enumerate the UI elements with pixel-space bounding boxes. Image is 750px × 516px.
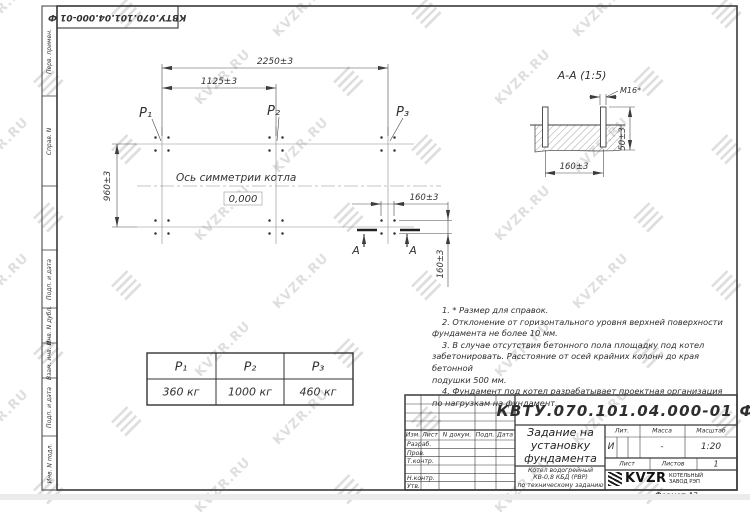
level-mark: 0,000 (229, 194, 258, 205)
col-data: Дата (497, 432, 513, 439)
top-stamp: КВТУ.070.101.04.000-01 Ф (57, 6, 178, 28)
margin-cell-sprav: Справ. N (42, 96, 57, 186)
note-line: 2. Отклонение от горизонтального уровня … (432, 317, 736, 329)
drawing-subtitle: Котел водогрейный КВ-0,8 КБД (РВР) по те… (516, 467, 605, 489)
section-view: А-А (1:5) M16* 50±3 160±3 (530, 69, 641, 177)
foundation-plan: 2250±3 1125±3 960±3 160±3 160±3 P₁ P₂ P₃… (103, 57, 452, 287)
massa-value: - (660, 442, 663, 452)
subtitle-line: КВ-0,8 КБД (РВР) (533, 474, 588, 481)
section-mark-left: A (351, 244, 360, 257)
load-value-p2: 1000 кг (228, 386, 272, 399)
kvzr-logo-text: KVZR (625, 471, 667, 486)
row-utv: Утв. (407, 483, 420, 490)
note-line: 3. В случае отсутствия бетонного пола пл… (432, 340, 736, 352)
row-nkontr: Н.контр. (407, 475, 435, 482)
note-line: 4. Фундамент под котел разрабатывает про… (432, 386, 736, 398)
kvzr-logo-icon (608, 472, 622, 486)
col-ndokum: N докум. (443, 432, 472, 439)
section-dim-height: 50±3 (618, 127, 628, 150)
axis-label: Ось симметрии котла (176, 172, 296, 184)
listov-label: Листов (661, 461, 684, 468)
doc-number: КВТУ.070.101.04.000-01 Ф (496, 402, 750, 420)
margin-cell-invpodl: Инв. N подл. (42, 436, 57, 490)
company-name: КОТЕЛЬНЫЙ ЗАВОД РЭП (669, 473, 703, 486)
lit-value: И (608, 442, 615, 452)
subtitle-line: Котел водогрейный (528, 467, 593, 474)
margin-cell-podp1: Подп. и дата (42, 250, 57, 308)
massa-label: Масса (652, 428, 672, 435)
label-p2: P₂ (267, 104, 280, 119)
technical-notes: 1. * Размер для справок. 2. Отклонение о… (432, 305, 736, 409)
top-stamp-number: КВТУ.070.101.04.000-01 Ф (48, 12, 186, 22)
list-label: Лист (619, 461, 635, 468)
subtitle-line: по техническому заданию (517, 482, 603, 489)
dim-height: 960±3 (103, 171, 113, 202)
margin-label: Подп. и дата (46, 259, 53, 300)
load-table-header-p2: P₂ (244, 359, 257, 374)
margin-cell-vzam: Взам. инв. N (42, 343, 57, 378)
dim-bolt-x: 160±3 (410, 193, 439, 203)
note-line: подушки 500 мм. (432, 375, 736, 387)
label-p1: P₁ (139, 106, 152, 121)
masshtab-value: 1:20 (701, 442, 721, 452)
row-tkontr: Т.контр. (407, 458, 434, 465)
bolt-size: M16* (620, 86, 641, 95)
note-line: фундамента не более 10 мм. (432, 328, 736, 340)
note-line: 1. * Размер для справок. (432, 305, 736, 317)
margin-cell-invdubl: Инв. N дубл. (42, 308, 57, 343)
dim-half-width: 1125±3 (201, 77, 237, 87)
margin-label: Справ. N (46, 127, 53, 154)
section-title: А-А (1:5) (557, 69, 607, 82)
lit-label: Лит. (615, 428, 629, 435)
margin-cell-podp2: Подп. и дата (42, 378, 57, 436)
title-line: Задание на (527, 426, 594, 439)
col-list: Лист (422, 432, 438, 439)
margin-label: Подп. и дата (46, 387, 53, 428)
load-table-header-p3: P₃ (312, 359, 325, 374)
sheet-edge-shadow (0, 494, 750, 500)
load-table-header-p1: P₁ (175, 359, 188, 374)
margin-cell-perv: Перв. примен. (42, 6, 57, 96)
load-value-p3: 460 кг (300, 386, 337, 399)
margin-label: Перв. примен. (46, 28, 53, 73)
drawing-title: Задание на установку фундамента (516, 426, 605, 465)
margin-label: Инв. N дубл. (46, 306, 53, 345)
row-prov: Пров. (407, 450, 425, 457)
note-line: забетонировать. Расстояние от осей крайн… (432, 351, 736, 374)
dim-bolt-y: 160±3 (436, 250, 446, 279)
company-name-line2: ЗАВОД РЭП (669, 479, 703, 485)
listov-value: 1 (713, 460, 718, 469)
label-p3: P₃ (396, 105, 409, 120)
load-value-p1: 360 кг (163, 386, 200, 399)
title-line: фундамента (524, 452, 597, 465)
row-razrab: Разраб. (407, 441, 431, 448)
section-dim-width: 160±3 (560, 162, 589, 172)
drawing-sheet: 2250±3 1125±3 960±3 160±3 160±3 P₁ P₂ P₃… (0, 0, 750, 500)
margin-label: Взам. инв. N (46, 341, 53, 380)
margin-label: Инв. N подл. (46, 443, 53, 483)
dim-total-width: 2250±3 (257, 57, 293, 67)
drawing-linework: 2250±3 1125±3 960±3 160±3 160±3 P₁ P₂ P₃… (0, 0, 750, 500)
title-line: установку (531, 439, 590, 452)
col-podp: Подп. (476, 432, 495, 439)
col-izm: Изм. (406, 432, 421, 439)
section-mark-right: A (408, 244, 417, 257)
masshtab-label: Масштаб (696, 428, 725, 435)
